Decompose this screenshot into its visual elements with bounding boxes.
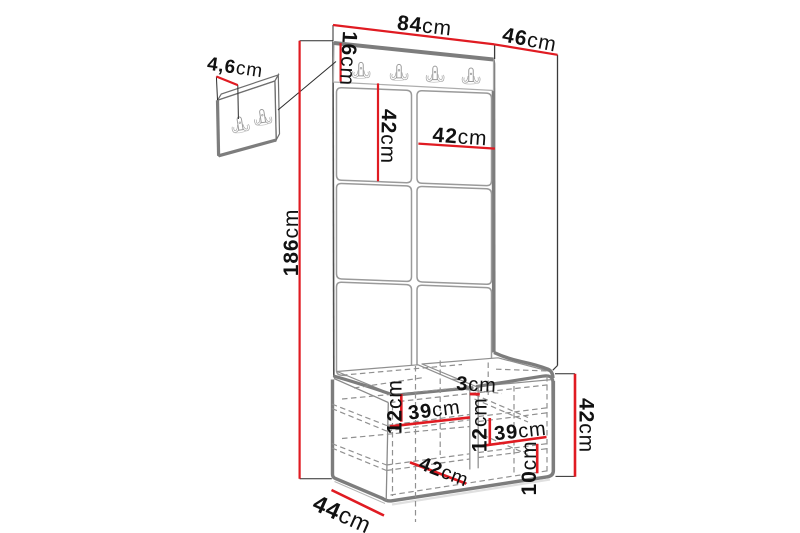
- svg-text:12cm: 12cm: [383, 379, 406, 434]
- svg-text:12cm: 12cm: [468, 397, 491, 452]
- svg-text:186cm: 186cm: [280, 209, 303, 277]
- svg-text:16cm: 16cm: [336, 31, 362, 87]
- svg-text:42cm: 42cm: [432, 123, 488, 150]
- svg-text:42cm: 42cm: [376, 109, 400, 164]
- svg-text:42cm: 42cm: [575, 398, 598, 453]
- svg-text:3cm: 3cm: [456, 373, 498, 397]
- svg-text:10cm: 10cm: [518, 441, 541, 496]
